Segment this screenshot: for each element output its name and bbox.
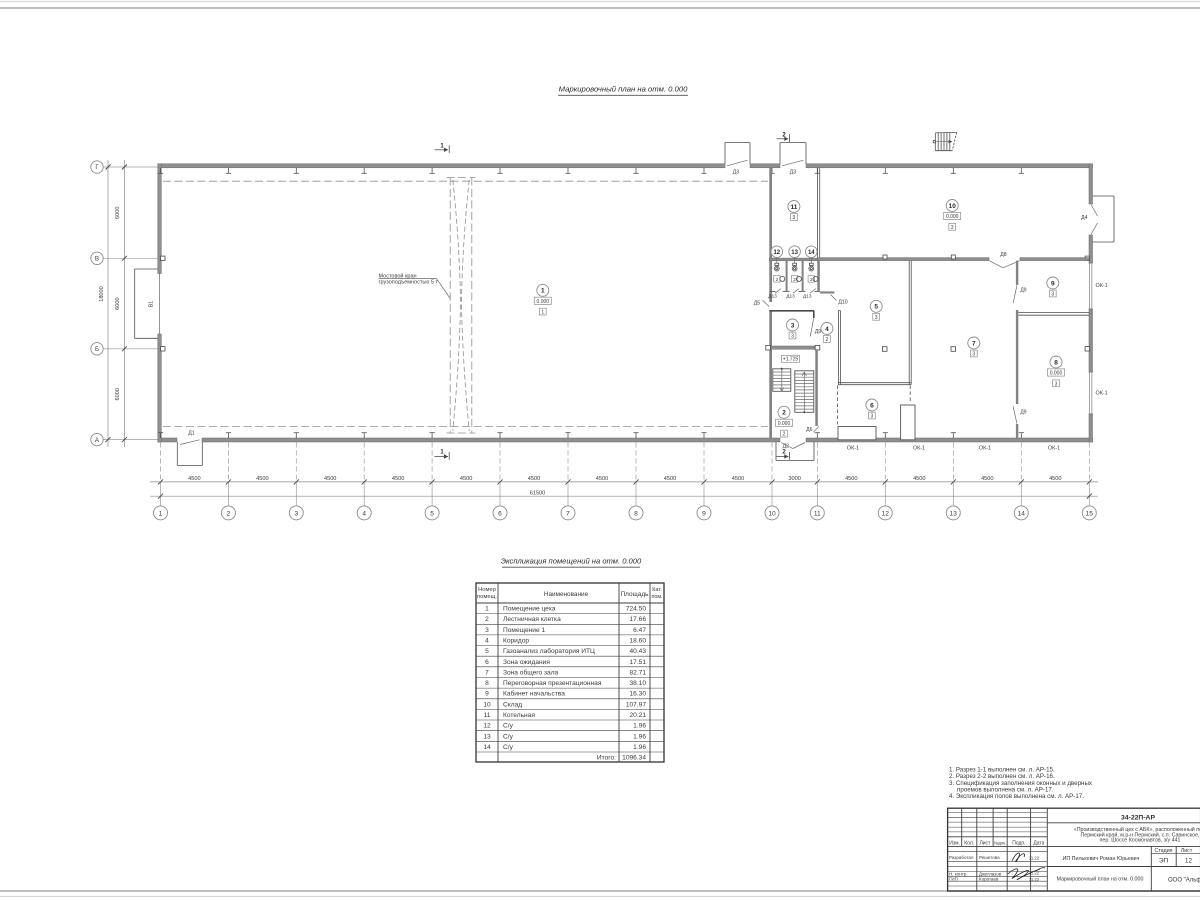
svg-text:20.21: 20.21 — [629, 712, 646, 719]
svg-text:82.71: 82.71 — [629, 669, 646, 676]
svg-text:9: 9 — [485, 691, 489, 698]
svg-text:3: 3 — [951, 225, 954, 231]
svg-text:Наименование: Наименование — [544, 591, 589, 598]
svg-text:18000: 18000 — [99, 286, 105, 302]
svg-text:11: 11 — [484, 712, 491, 719]
svg-text:4500: 4500 — [528, 476, 540, 482]
svg-text:2: 2 — [826, 337, 829, 343]
svg-text:1: 1 — [440, 450, 444, 456]
svg-text:1: 1 — [541, 288, 545, 295]
svg-text:ОК-1: ОК-1 — [1096, 391, 1108, 397]
svg-text:Зона ожидания: Зона ожидания — [503, 659, 550, 666]
svg-text:Д6: Д6 — [806, 427, 813, 433]
svg-text:Решетова: Решетова — [979, 855, 1000, 860]
svg-text:15: 15 — [1086, 510, 1094, 517]
svg-text:ОК-1: ОК-1 — [847, 446, 859, 452]
svg-text:8: 8 — [1054, 359, 1058, 366]
svg-text:0.000: 0.000 — [778, 421, 791, 427]
svg-text:3000: 3000 — [788, 476, 800, 482]
svg-text:4500: 4500 — [845, 476, 857, 482]
svg-text:4500: 4500 — [913, 476, 925, 482]
svg-text:5: 5 — [874, 304, 878, 311]
svg-text:7: 7 — [485, 669, 489, 676]
svg-text:2: 2 — [810, 277, 813, 283]
svg-text:3: 3 — [972, 352, 975, 358]
svg-text:8: 8 — [485, 680, 489, 687]
svg-text:ОК-1: ОК-1 — [979, 446, 991, 452]
svg-text:2: 2 — [793, 277, 796, 283]
svg-text:Итого:: Итого: — [597, 754, 616, 761]
svg-text:1: 1 — [440, 144, 444, 150]
svg-text:0.000: 0.000 — [537, 299, 550, 305]
svg-text:6000: 6000 — [115, 206, 121, 218]
svg-text:3: 3 — [791, 334, 794, 340]
svg-text:5: 5 — [485, 648, 489, 655]
svg-text:Маркировочный план на отм. 0.: Маркировочный план на отм. 0.000 — [559, 85, 688, 94]
svg-text:18.60: 18.60 — [629, 638, 646, 645]
svg-text:8: 8 — [634, 510, 638, 517]
svg-text:Дата: Дата — [1033, 841, 1044, 847]
svg-text:Зона общего зала: Зона общего зала — [503, 668, 559, 676]
svg-text:ИП Пилькевич Роман Юрьевич: ИП Пилькевич Роман Юрьевич — [1063, 856, 1140, 862]
svg-text:ОК-1: ОК-1 — [1048, 446, 1060, 452]
svg-text:пер. Шоссе Космонавтов, з/у 44: пер. Шоссе Космонавтов, з/у 441 — [1100, 838, 1181, 844]
svg-text:3: 3 — [793, 215, 796, 221]
svg-text:7: 7 — [972, 340, 976, 347]
svg-text:+1.725: +1.725 — [783, 357, 799, 363]
svg-text:Площадь: Площадь — [621, 591, 649, 598]
svg-text:Коротаев: Коротаев — [979, 877, 999, 882]
svg-text:Переговорная презентационная: Переговорная презентационная — [503, 680, 602, 687]
svg-text:3: 3 — [1051, 292, 1054, 298]
svg-text:11: 11 — [814, 510, 821, 517]
svg-text:1.96: 1.96 — [633, 723, 646, 730]
svg-text:Лестничная клетка: Лестничная клетка — [503, 616, 561, 623]
svg-text:61500: 61500 — [530, 491, 546, 497]
svg-text:С/у: С/у — [503, 744, 514, 751]
svg-text:Д9: Д9 — [1020, 410, 1026, 416]
svg-text:14: 14 — [1018, 510, 1026, 517]
svg-text:3: 3 — [485, 627, 489, 634]
svg-text:Д13: Д13 — [803, 294, 812, 300]
svg-text:11: 11 — [790, 204, 797, 211]
svg-text:4500: 4500 — [596, 476, 608, 482]
svg-text:Д13: Д13 — [768, 294, 777, 300]
svg-text:4500: 4500 — [981, 476, 993, 482]
svg-text:2. Разрез 2-2 выполнен см. л.: 2. Разрез 2-2 выполнен см. л. АР-16. — [949, 773, 1055, 780]
svg-text:6.47: 6.47 — [633, 627, 646, 634]
svg-text:Д3: Д3 — [733, 170, 740, 176]
svg-text:10: 10 — [483, 701, 491, 708]
svg-text:1.96: 1.96 — [633, 744, 646, 751]
svg-text:Д8: Д8 — [1000, 252, 1007, 258]
svg-text:Д9: Д9 — [1020, 288, 1026, 294]
svg-text:пом.: пом. — [651, 594, 662, 600]
svg-text:11.22: 11.22 — [1029, 855, 1040, 860]
svg-text:Д5: Д5 — [754, 301, 761, 307]
svg-text:Экспликация помещений на отм.: Экспликация помещений на отм. 0.000 — [501, 557, 642, 566]
svg-text:14: 14 — [483, 744, 491, 751]
svg-text:С/у: С/у — [503, 733, 514, 740]
svg-text:2: 2 — [782, 410, 786, 417]
svg-text:1096.34: 1096.34 — [622, 754, 646, 761]
svg-text:34-22П-АР: 34-22П-АР — [1121, 814, 1155, 821]
svg-text:Помещение цеха: Помещение цеха — [503, 606, 556, 613]
svg-text:0.000: 0.000 — [946, 214, 959, 220]
svg-text:3: 3 — [294, 510, 298, 517]
svg-text:10: 10 — [768, 510, 776, 517]
svg-text:6: 6 — [498, 510, 502, 517]
svg-text:4500: 4500 — [460, 476, 472, 482]
svg-text:12: 12 — [1185, 857, 1193, 864]
svg-text:Кабинет начальства: Кабинет начальства — [503, 690, 565, 698]
svg-text:13: 13 — [791, 250, 798, 256]
svg-text:Кол.: Кол. — [964, 841, 974, 847]
svg-text:Лист: Лист — [1181, 848, 1193, 854]
svg-text:40.43: 40.43 — [629, 648, 646, 655]
svg-text:7: 7 — [566, 510, 570, 517]
svg-text:2: 2 — [485, 616, 489, 623]
svg-text:4500: 4500 — [732, 476, 744, 482]
svg-text:Лист: Лист — [979, 841, 991, 847]
svg-text:помещ.: помещ. — [477, 594, 497, 600]
svg-text:Маркировочный план на отм. 0.0: Маркировочный план на отм. 0.000 — [1057, 876, 1144, 883]
svg-text:4: 4 — [362, 510, 366, 517]
svg-text:ОК-1: ОК-1 — [1096, 283, 1108, 289]
svg-text:13: 13 — [950, 510, 958, 517]
svg-text:16.30: 16.30 — [629, 691, 646, 698]
svg-text:грузоподъемностью 5 т: грузоподъемностью 5 т — [379, 280, 439, 286]
svg-text:6: 6 — [485, 659, 489, 666]
svg-text:Б: Б — [95, 346, 99, 353]
svg-text:4500: 4500 — [188, 476, 200, 482]
svg-text:14: 14 — [808, 250, 815, 256]
svg-text:В: В — [95, 256, 99, 263]
svg-text:В1: В1 — [148, 301, 154, 308]
svg-text:9: 9 — [702, 510, 706, 517]
svg-text:12: 12 — [773, 250, 780, 256]
svg-text:4500: 4500 — [256, 476, 268, 482]
svg-text:Д10: Д10 — [838, 300, 847, 306]
svg-text:ЭП: ЭП — [1159, 857, 1169, 864]
svg-text:ООО "Альфа: ООО "Альфа — [1168, 878, 1200, 884]
svg-text:1: 1 — [159, 510, 163, 517]
svg-text:10: 10 — [949, 203, 957, 210]
svg-text:2: 2 — [227, 510, 231, 517]
svg-text:ГИП: ГИП — [949, 877, 958, 882]
svg-text:6: 6 — [870, 402, 874, 409]
svg-text:1: 1 — [541, 310, 544, 316]
svg-text:724.50: 724.50 — [626, 606, 647, 613]
svg-text:17.66: 17.66 — [629, 616, 646, 623]
svg-text:1: 1 — [485, 606, 489, 613]
svg-text:4: 4 — [825, 326, 829, 333]
svg-text:Подп.: Подп. — [1012, 841, 1025, 847]
svg-text:Склад: Склад — [503, 701, 522, 708]
svg-text:4500: 4500 — [392, 476, 404, 482]
svg-text:12: 12 — [882, 510, 890, 517]
svg-text:3: 3 — [871, 414, 874, 420]
svg-text:Д4: Д4 — [1081, 215, 1088, 221]
svg-text:0.000: 0.000 — [1050, 371, 1063, 377]
svg-text:С/у: С/у — [503, 723, 514, 730]
svg-text:3: 3 — [1055, 381, 1058, 387]
svg-text:Д13: Д13 — [786, 294, 795, 300]
svg-text:9: 9 — [1051, 280, 1055, 287]
svg-text:3: 3 — [875, 315, 878, 321]
svg-text:Разработал: Разработал — [949, 855, 974, 860]
svg-text:4500: 4500 — [324, 476, 336, 482]
svg-text:6000: 6000 — [115, 297, 121, 309]
svg-text:4: 4 — [485, 638, 489, 645]
svg-text:1.96: 1.96 — [633, 733, 646, 740]
svg-text:Д1: Д1 — [188, 431, 195, 437]
svg-text:Коридор: Коридор — [503, 638, 529, 645]
svg-text:Котельная: Котельная — [503, 712, 535, 719]
svg-text:Помещение 1: Помещение 1 — [503, 627, 545, 634]
svg-text:5: 5 — [430, 510, 434, 517]
svg-text:11.22: 11.22 — [1029, 877, 1040, 882]
svg-text:2: 2 — [783, 432, 786, 438]
svg-text:Д3: Д3 — [790, 170, 797, 176]
svg-text:№док.: №док. — [994, 841, 1006, 846]
svg-text:Кат.: Кат. — [652, 587, 661, 593]
svg-text:4500: 4500 — [1049, 476, 1061, 482]
svg-text:17.51: 17.51 — [629, 659, 646, 666]
svg-text:6000: 6000 — [115, 388, 121, 400]
svg-text:13: 13 — [483, 733, 491, 740]
svg-text:Номер: Номер — [478, 587, 496, 593]
svg-text:4500: 4500 — [664, 476, 676, 482]
svg-text:Д9: Д9 — [815, 329, 821, 335]
svg-text:3: 3 — [791, 322, 795, 329]
svg-text:107.97: 107.97 — [626, 701, 647, 708]
svg-text:4. Экспликация полов выполнена: 4. Экспликация полов выполнена см. л. АР… — [949, 793, 1084, 800]
svg-text:12: 12 — [483, 723, 491, 730]
svg-text:38.10: 38.10 — [629, 680, 646, 687]
svg-text:2: 2 — [775, 277, 778, 283]
svg-text:Газоанализ лаборатория ИТЦ: Газоанализ лаборатория ИТЦ — [503, 647, 595, 655]
svg-text:Изм.: Изм. — [949, 841, 960, 847]
svg-text:ОК-1: ОК-1 — [913, 446, 925, 452]
svg-text:Стадия: Стадия — [1154, 848, 1172, 854]
